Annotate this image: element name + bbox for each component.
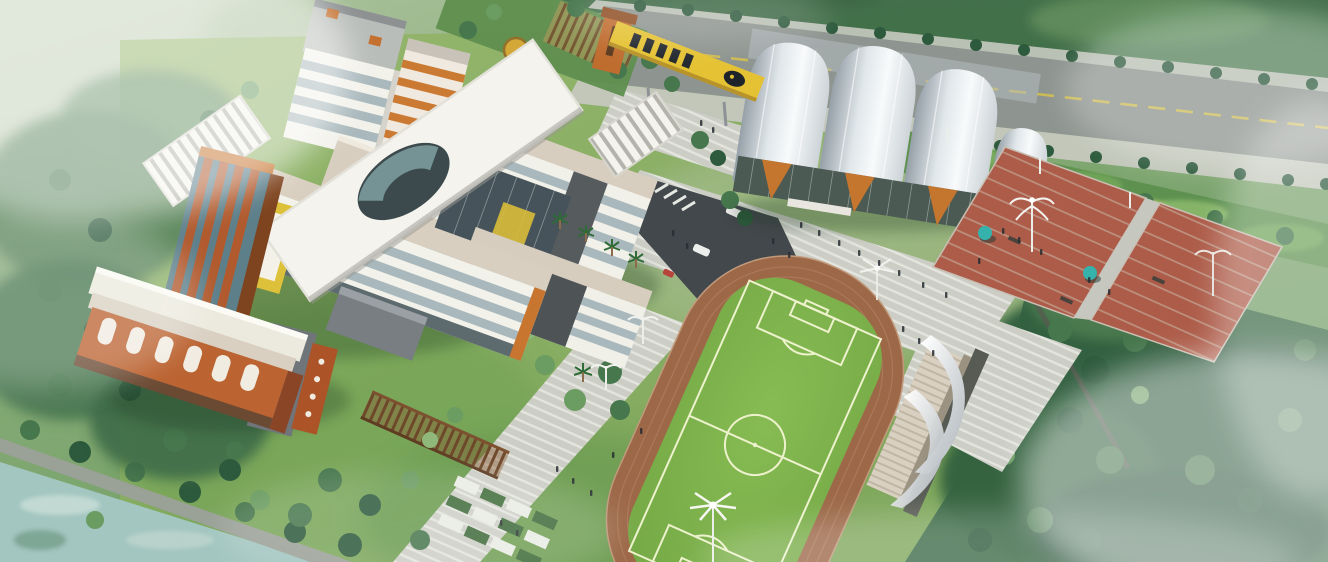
campus-aerial-view <box>0 0 1328 562</box>
campus-render <box>0 0 1328 562</box>
